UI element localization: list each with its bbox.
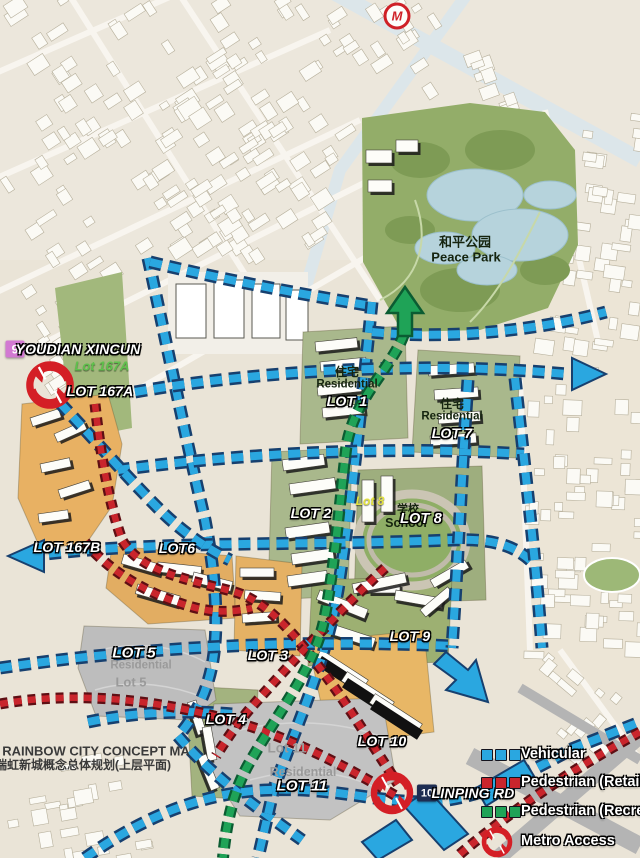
- plan-title-en: RAINBOW CITY CONCEPT MA: [2, 745, 190, 758]
- lot8-label: LOT 8: [400, 512, 442, 527]
- lot1-residential-label: Residential: [316, 379, 377, 391]
- lot5-label: LOT 5: [112, 646, 156, 661]
- legend-label-pedestrian-retail: Pedestrian (Retail): [521, 775, 640, 790]
- lot11-residential-label: Residential: [270, 766, 337, 779]
- peace-park-label-zh: 和平公园: [439, 236, 491, 249]
- lot7-label: LOT 7: [432, 426, 473, 440]
- legend-label-pedestrian-recreation: Pedestrian (Recreation): [521, 804, 640, 819]
- lot11-sub-label: Lot 11: [267, 741, 306, 755]
- lot167b-label: LOT 167B: [34, 540, 101, 554]
- metro-m-logo: M: [384, 3, 411, 30]
- legend-label-vehicular: Vehicular: [521, 747, 585, 762]
- legend-swatch-retail: [481, 777, 521, 789]
- lot11-label: LOT 11: [277, 779, 328, 794]
- master-plan-map: M 和平公园 Peace Park 9 YOUDIAN XINCUN Lot 1…: [0, 0, 640, 858]
- lot8-sub-label: Lot 8: [356, 495, 385, 507]
- lot7-zh-label: 住宅: [440, 398, 464, 410]
- lot7-residential-label: Residential: [421, 411, 482, 423]
- lot1-label: LOT 1: [327, 394, 368, 408]
- plan-title-zh: 瑞虹新城概念总体规划(上层平面): [0, 759, 171, 771]
- legend-swatch-recreation: [481, 806, 521, 818]
- legend-label-metro-access: Metro Access: [521, 834, 615, 849]
- legend-metro-access-icon: [479, 824, 515, 858]
- lot4-label: LOT 4: [206, 712, 247, 726]
- lot1-zh-label: 住宅: [335, 366, 359, 378]
- legend-swatch-vehicular: [481, 749, 521, 761]
- lot167a-sub-label: Lot 167A: [75, 360, 130, 373]
- lot2-label: LOT 2: [291, 506, 332, 520]
- lot10-label: LOT 10: [358, 734, 407, 748]
- lot3-label: LOT 3: [248, 648, 289, 662]
- map-canvas: [0, 0, 640, 858]
- lot6-label: LOT6: [159, 541, 196, 555]
- station-9-name: YOUDIAN XINCUN: [16, 342, 141, 356]
- lot5-sub-label: Lot 5: [115, 676, 146, 689]
- lot167a-label: LOT 167A: [67, 384, 134, 398]
- lot5-residential-label: Residential: [110, 660, 171, 672]
- peace-park-label-en: Peace Park: [431, 251, 500, 264]
- lot9-label: LOT 9: [390, 629, 431, 643]
